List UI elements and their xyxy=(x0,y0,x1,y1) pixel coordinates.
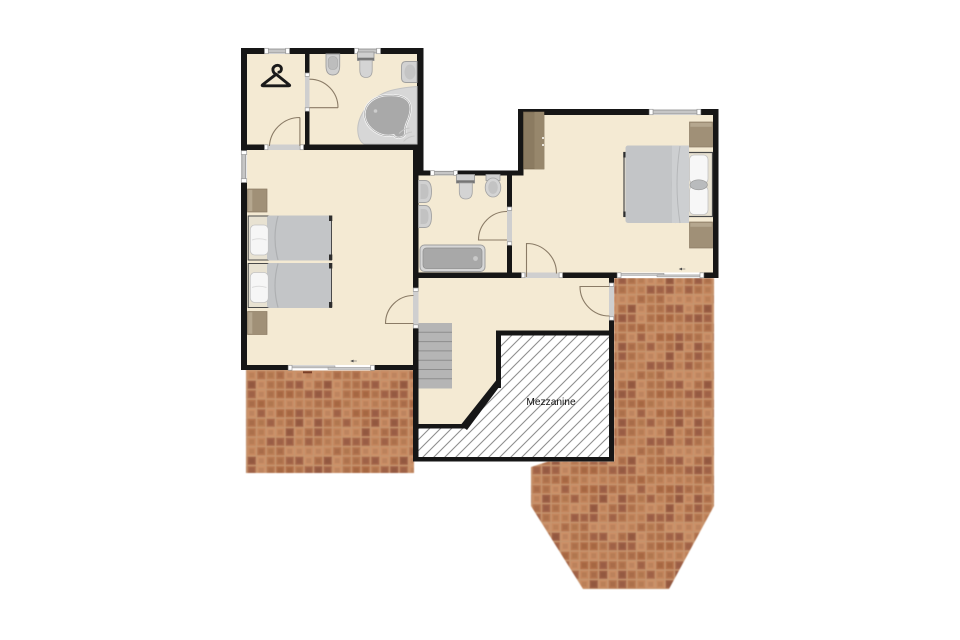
svg-text:Mezzanine: Mezzanine xyxy=(526,397,576,408)
